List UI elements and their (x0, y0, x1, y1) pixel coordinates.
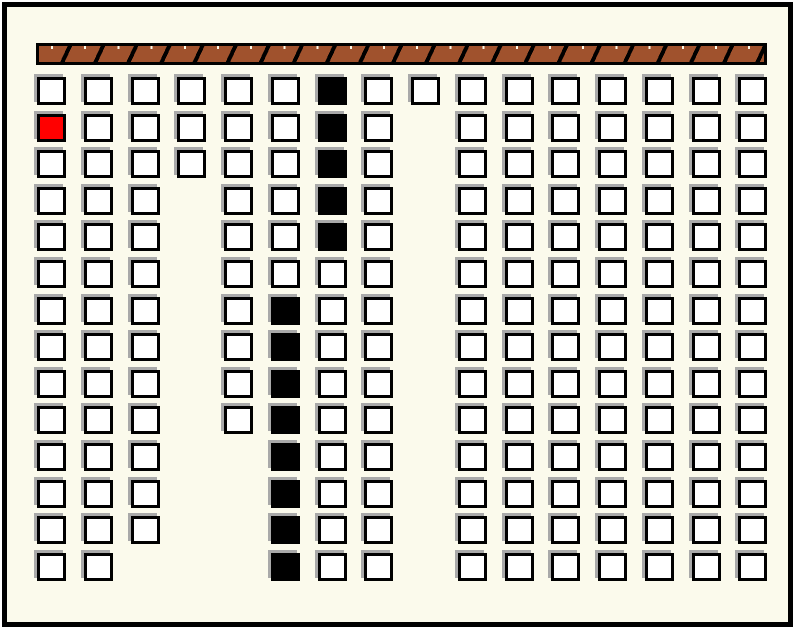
block-white[interactable] (505, 333, 534, 361)
block-black[interactable] (318, 114, 347, 142)
block-red[interactable] (37, 114, 66, 142)
block-white[interactable] (364, 333, 393, 361)
block-white[interactable] (598, 114, 627, 142)
block-white[interactable] (738, 553, 767, 581)
block-white[interactable] (224, 223, 253, 251)
block-white[interactable] (224, 370, 253, 398)
block-white[interactable] (551, 77, 580, 105)
block-white[interactable] (505, 406, 534, 434)
block-white[interactable] (738, 480, 767, 508)
block-white[interactable] (551, 260, 580, 288)
block-white[interactable] (505, 297, 534, 325)
block-white[interactable] (505, 150, 534, 178)
block-white[interactable] (37, 150, 66, 178)
block-white[interactable] (271, 150, 300, 178)
block-white[interactable] (645, 516, 674, 544)
block-white[interactable] (37, 297, 66, 325)
block-white[interactable] (738, 516, 767, 544)
block-white[interactable] (551, 443, 580, 471)
block-white[interactable] (598, 443, 627, 471)
block-white[interactable] (318, 406, 347, 434)
block-white[interactable] (645, 297, 674, 325)
block-black[interactable] (271, 516, 300, 544)
block-white[interactable] (505, 443, 534, 471)
block-white[interactable] (598, 260, 627, 288)
block-white[interactable] (692, 187, 721, 215)
block-white[interactable] (458, 370, 487, 398)
block-white[interactable] (364, 77, 393, 105)
block-black[interactable] (318, 223, 347, 251)
block-white[interactable] (37, 443, 66, 471)
block-white[interactable] (692, 77, 721, 105)
block-white[interactable] (131, 516, 160, 544)
block-white[interactable] (738, 150, 767, 178)
block-white[interactable] (692, 150, 721, 178)
block-white[interactable] (364, 114, 393, 142)
block-white[interactable] (738, 443, 767, 471)
block-white[interactable] (364, 223, 393, 251)
block-white[interactable] (131, 223, 160, 251)
block-white[interactable] (364, 406, 393, 434)
block-white[interactable] (131, 150, 160, 178)
block-white[interactable] (458, 77, 487, 105)
block-white[interactable] (364, 370, 393, 398)
block-white[interactable] (505, 187, 534, 215)
block-white[interactable] (738, 406, 767, 434)
block-white[interactable] (318, 370, 347, 398)
block-white[interactable] (84, 223, 113, 251)
block-white[interactable] (692, 114, 721, 142)
block-white[interactable] (37, 553, 66, 581)
block-white[interactable] (645, 370, 674, 398)
block-white[interactable] (318, 553, 347, 581)
block-white[interactable] (131, 187, 160, 215)
block-white[interactable] (318, 480, 347, 508)
block-white[interactable] (458, 516, 487, 544)
block-white[interactable] (598, 406, 627, 434)
block-white[interactable] (84, 553, 113, 581)
block-white[interactable] (598, 223, 627, 251)
block-white[interactable] (551, 480, 580, 508)
block-white[interactable] (692, 370, 721, 398)
block-black[interactable] (271, 443, 300, 471)
block-white[interactable] (364, 297, 393, 325)
block-white[interactable] (84, 370, 113, 398)
block-white[interactable] (224, 260, 253, 288)
block-white[interactable] (645, 260, 674, 288)
block-white[interactable] (271, 77, 300, 105)
block-white[interactable] (318, 516, 347, 544)
block-white[interactable] (551, 553, 580, 581)
block-white[interactable] (598, 516, 627, 544)
block-white[interactable] (37, 516, 66, 544)
block-white[interactable] (271, 187, 300, 215)
block-white[interactable] (598, 553, 627, 581)
block-white[interactable] (37, 333, 66, 361)
block-white[interactable] (458, 187, 487, 215)
block-white[interactable] (224, 187, 253, 215)
block-white[interactable] (224, 150, 253, 178)
block-white[interactable] (271, 114, 300, 142)
block-white[interactable] (645, 443, 674, 471)
block-white[interactable] (37, 223, 66, 251)
block-white[interactable] (131, 297, 160, 325)
block-white[interactable] (551, 223, 580, 251)
block-white[interactable] (505, 370, 534, 398)
block-white[interactable] (551, 114, 580, 142)
block-white[interactable] (645, 187, 674, 215)
block-black[interactable] (271, 406, 300, 434)
block-white[interactable] (37, 187, 66, 215)
block-white[interactable] (458, 260, 487, 288)
block-black[interactable] (271, 370, 300, 398)
block-white[interactable] (364, 443, 393, 471)
game-screen (0, 0, 800, 629)
block-white[interactable] (458, 114, 487, 142)
block-white[interactable] (458, 297, 487, 325)
block-white[interactable] (131, 480, 160, 508)
block-black[interactable] (271, 480, 300, 508)
block-white[interactable] (131, 260, 160, 288)
block-white[interactable] (598, 297, 627, 325)
block-black[interactable] (318, 187, 347, 215)
block-white[interactable] (37, 260, 66, 288)
block-white[interactable] (458, 406, 487, 434)
block-white[interactable] (692, 333, 721, 361)
block-white[interactable] (645, 77, 674, 105)
block-white[interactable] (598, 187, 627, 215)
block-white[interactable] (738, 77, 767, 105)
block-white[interactable] (692, 553, 721, 581)
block-white[interactable] (177, 150, 206, 178)
block-white[interactable] (692, 480, 721, 508)
block-white[interactable] (224, 333, 253, 361)
block-white[interactable] (224, 77, 253, 105)
block-white[interactable] (458, 443, 487, 471)
block-white[interactable] (551, 370, 580, 398)
block-white[interactable] (318, 297, 347, 325)
block-white[interactable] (692, 406, 721, 434)
block-white[interactable] (84, 77, 113, 105)
block-black[interactable] (318, 77, 347, 105)
block-black[interactable] (318, 150, 347, 178)
block-white[interactable] (505, 260, 534, 288)
block-white[interactable] (37, 406, 66, 434)
block-black[interactable] (271, 333, 300, 361)
block-white[interactable] (131, 370, 160, 398)
block-white[interactable] (738, 333, 767, 361)
block-white[interactable] (364, 480, 393, 508)
block-white[interactable] (318, 260, 347, 288)
block-white[interactable] (645, 223, 674, 251)
block-white[interactable] (505, 553, 534, 581)
block-board (0, 0, 800, 629)
block-white[interactable] (645, 114, 674, 142)
block-white[interactable] (37, 77, 66, 105)
block-white[interactable] (318, 443, 347, 471)
block-white[interactable] (645, 333, 674, 361)
block-white[interactable] (364, 260, 393, 288)
block-white[interactable] (131, 333, 160, 361)
block-white[interactable] (692, 443, 721, 471)
block-white[interactable] (645, 553, 674, 581)
block-white[interactable] (598, 333, 627, 361)
block-white[interactable] (551, 333, 580, 361)
block-white[interactable] (37, 370, 66, 398)
block-white[interactable] (364, 516, 393, 544)
block-white[interactable] (411, 77, 440, 105)
block-white[interactable] (458, 223, 487, 251)
block-white[interactable] (84, 480, 113, 508)
block-white[interactable] (598, 150, 627, 178)
block-white[interactable] (364, 187, 393, 215)
block-white[interactable] (364, 150, 393, 178)
block-white[interactable] (645, 150, 674, 178)
block-white[interactable] (551, 297, 580, 325)
block-white[interactable] (738, 260, 767, 288)
block-white[interactable] (738, 370, 767, 398)
block-white[interactable] (738, 297, 767, 325)
block-white[interactable] (177, 114, 206, 142)
block-white[interactable] (505, 480, 534, 508)
block-white[interactable] (505, 77, 534, 105)
block-white[interactable] (458, 150, 487, 178)
block-white[interactable] (84, 260, 113, 288)
block-white[interactable] (505, 516, 534, 544)
block-white[interactable] (598, 77, 627, 105)
block-white[interactable] (738, 187, 767, 215)
block-white[interactable] (738, 114, 767, 142)
block-white[interactable] (177, 77, 206, 105)
block-white[interactable] (131, 77, 160, 105)
block-white[interactable] (692, 223, 721, 251)
block-black[interactable] (271, 553, 300, 581)
block-white[interactable] (458, 333, 487, 361)
block-white[interactable] (224, 297, 253, 325)
block-white[interactable] (598, 370, 627, 398)
block-white[interactable] (645, 480, 674, 508)
block-white[interactable] (364, 553, 393, 581)
block-white[interactable] (131, 406, 160, 434)
block-white[interactable] (738, 223, 767, 251)
block-white[interactable] (551, 150, 580, 178)
block-white[interactable] (37, 480, 66, 508)
block-white[interactable] (271, 260, 300, 288)
block-white[interactable] (84, 297, 113, 325)
block-white[interactable] (692, 297, 721, 325)
block-black[interactable] (271, 297, 300, 325)
block-white[interactable] (84, 114, 113, 142)
block-white[interactable] (551, 406, 580, 434)
block-white[interactable] (84, 187, 113, 215)
block-white[interactable] (84, 443, 113, 471)
block-white[interactable] (84, 516, 113, 544)
block-white[interactable] (131, 443, 160, 471)
block-white[interactable] (505, 114, 534, 142)
block-white[interactable] (692, 516, 721, 544)
block-white[interactable] (224, 114, 253, 142)
block-white[interactable] (224, 406, 253, 434)
block-white[interactable] (692, 260, 721, 288)
block-white[interactable] (84, 150, 113, 178)
block-white[interactable] (271, 223, 300, 251)
block-white[interactable] (598, 480, 627, 508)
block-white[interactable] (551, 516, 580, 544)
block-white[interactable] (84, 406, 113, 434)
block-white[interactable] (318, 333, 347, 361)
block-white[interactable] (551, 187, 580, 215)
block-white[interactable] (645, 406, 674, 434)
block-white[interactable] (458, 480, 487, 508)
block-white[interactable] (84, 333, 113, 361)
block-white[interactable] (131, 114, 160, 142)
block-white[interactable] (458, 553, 487, 581)
block-white[interactable] (505, 223, 534, 251)
